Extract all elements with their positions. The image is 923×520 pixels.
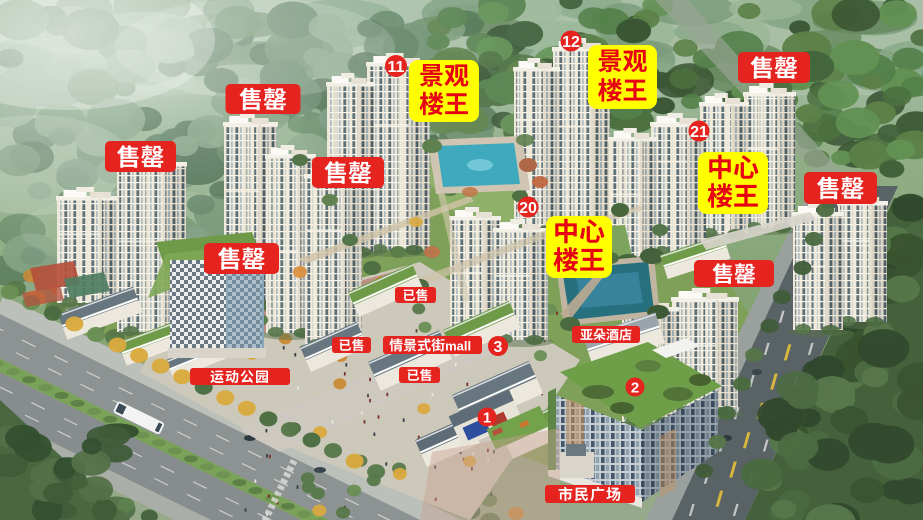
svg-text:3: 3	[494, 339, 503, 356]
svg-text:mall: mall	[445, 338, 471, 353]
svg-text:2: 2	[631, 379, 639, 396]
svg-text:21: 21	[690, 124, 708, 141]
svg-text:20: 20	[519, 200, 537, 217]
svg-text:12: 12	[562, 34, 580, 51]
svg-text:1: 1	[483, 409, 491, 426]
svg-text:11: 11	[388, 59, 405, 76]
